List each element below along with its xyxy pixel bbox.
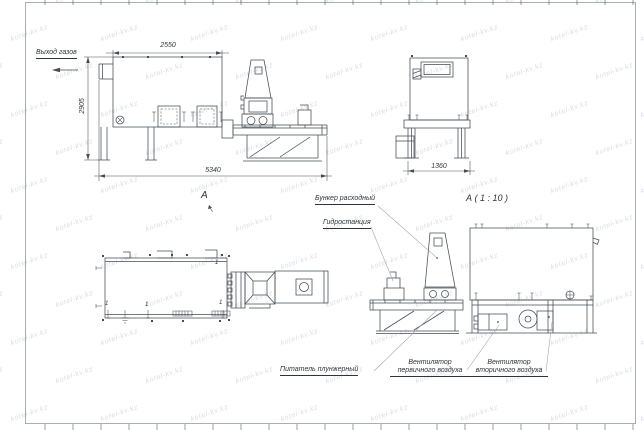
labels-layer: Выход газов 2550 2905 5340 1360 А А ( 1 …	[0, 0, 644, 430]
dim-5340-text: 5340	[195, 167, 231, 175]
primary-fan-callout-line1: Вентилятор	[390, 359, 470, 367]
detail-title: А ( 1 : 10 )	[466, 194, 508, 202]
hydrostation-callout: Гидростанция	[323, 219, 371, 229]
primary-fan-callout: Вентилятор первичного воздуха	[390, 359, 470, 377]
position-mark: 1	[105, 300, 108, 308]
drawing-sheet: kotel-kv.kzkotel-kv.kzkotel-kv.kzkotel-k…	[0, 0, 644, 430]
dim-2905-text: 2905	[79, 88, 87, 124]
view-a-letter: А	[201, 192, 208, 200]
position-mark: 1	[145, 301, 148, 309]
feeder-callout: Питатель плунжерный	[280, 366, 358, 376]
position-mark: 1	[219, 299, 222, 307]
secondary-fan-callout-line1: Вентилятор	[470, 359, 548, 367]
primary-fan-callout-line2: первичного воздуха	[390, 367, 470, 375]
hopper-callout: Бункер расходный	[315, 195, 375, 205]
dim-1360-text: 1360	[421, 163, 457, 171]
secondary-fan-callout-line2: вторичного воздуха	[470, 367, 548, 375]
secondary-fan-callout: Вентилятор вторичного воздуха	[470, 359, 548, 377]
position-mark: 1	[215, 259, 218, 267]
gas-outlet-callout: Выход газов	[36, 49, 77, 59]
dim-2550-text: 2550	[150, 42, 186, 50]
